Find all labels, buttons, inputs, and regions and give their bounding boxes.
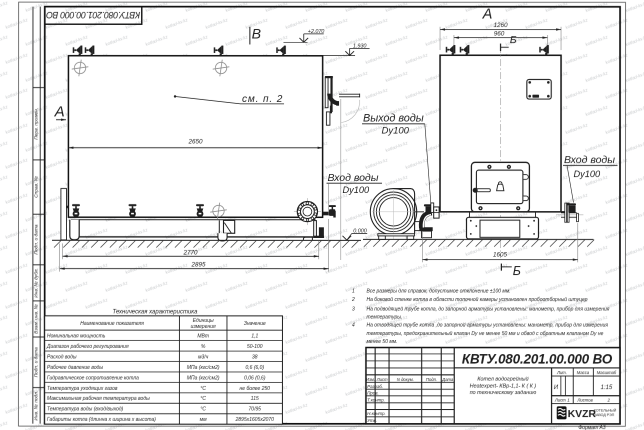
svg-text:kotlad-kv.kz: kotlad-kv.kz: [0, 420, 9, 430]
svg-text:Инв. № подл.: Инв. № подл.: [34, 391, 40, 421]
svg-text:kotlad-kv.kz: kotlad-kv.kz: [185, 280, 209, 293]
svg-text:kotlad-kv.kz: kotlad-kv.kz: [225, 244, 249, 257]
svg-text:kotlad-kv.kz: kotlad-kv.kz: [205, 297, 229, 310]
svg-text:kotlad-kv.kz: kotlad-kv.kz: [385, 140, 409, 153]
svg-text:не более 250: не более 250: [239, 386, 270, 392]
svg-text:kotlad-kv.kz: kotlad-kv.kz: [385, 70, 409, 83]
svg-text:КВТУ.080.201.00.000 ВО: КВТУ.080.201.00.000 ВО: [462, 352, 613, 367]
svg-text:kotlad-kv.kz: kotlad-kv.kz: [385, 244, 409, 257]
svg-text:Взам. инв. №: Взам. инв. №: [34, 304, 40, 334]
svg-text:2: 2: [351, 297, 355, 303]
svg-text:kotlad-kv.kz: kotlad-kv.kz: [625, 34, 644, 47]
svg-text:Выход воды: Выход воды: [363, 112, 424, 124]
svg-text:Вход воды: Вход воды: [564, 154, 615, 166]
svg-text:°С: °С: [200, 396, 206, 402]
svg-text:kotlad-kv.kz: kotlad-kv.kz: [0, 314, 9, 327]
svg-text:kotlad-kv.kz: kotlad-kv.kz: [225, 280, 249, 293]
svg-text:kotlad-kv.kz: kotlad-kv.kz: [445, 227, 469, 240]
svg-text:kotlad-kv.kz: kotlad-kv.kz: [345, 210, 369, 223]
svg-text:kotlad-kv.kz: kotlad-kv.kz: [625, 420, 644, 430]
svg-text:kotlad-kv.kz: kotlad-kv.kz: [205, 17, 229, 30]
svg-text:Лит.: Лит.: [556, 370, 567, 375]
svg-text:Гидравлическое сопротивление к: Гидравлическое сопротивление котла: [47, 375, 139, 381]
svg-text:kotlad-kv.kz: kotlad-kv.kz: [505, 34, 529, 47]
svg-text:kotlad-kv.kz: kotlad-kv.kz: [0, 384, 9, 397]
svg-text:kotlad-kv.kz: kotlad-kv.kz: [185, 34, 209, 47]
svg-text:kotlad-kv.kz: kotlad-kv.kz: [585, 104, 609, 117]
svg-text:см. п. 2: см. п. 2: [242, 94, 283, 105]
svg-text:kotlad-kv.kz: kotlad-kv.kz: [385, 34, 409, 47]
svg-text:Dy100: Dy100: [574, 169, 601, 179]
svg-text:kotlad-kv.kz: kotlad-kv.kz: [325, 297, 349, 310]
svg-text:kotlad-kv.kz: kotlad-kv.kz: [445, 17, 469, 30]
svg-text:мм: мм: [200, 417, 207, 423]
svg-text:Dy100: Dy100: [343, 185, 370, 195]
svg-text:kotlad-kv.kz: kotlad-kv.kz: [0, 104, 9, 117]
svg-text:kotlad-kv.kz: kotlad-kv.kz: [5, 17, 29, 30]
svg-text:kotlad-kv.kz: kotlad-kv.kz: [625, 210, 644, 223]
svg-text:kotlad-kv.kz: kotlad-kv.kz: [5, 367, 29, 380]
svg-text:Dy100: Dy100: [382, 126, 410, 137]
svg-text:ЗАВОД РЭП: ЗАВОД РЭП: [594, 413, 615, 417]
svg-text:Вход воды: Вход воды: [328, 172, 379, 184]
svg-text:0,06 (0,6): 0,06 (0,6): [244, 375, 266, 381]
svg-text:Масса: Масса: [577, 370, 590, 375]
svg-text:kotlad-kv.kz: kotlad-kv.kz: [325, 332, 349, 345]
svg-text:kotlad-kv.kz: kotlad-kv.kz: [5, 87, 29, 100]
svg-text:kotlad-kv.kz: kotlad-kv.kz: [0, 350, 9, 363]
svg-text:kotlad-kv.kz: kotlad-kv.kz: [565, 122, 589, 135]
svg-text:kotlad-kv.kz: kotlad-kv.kz: [625, 384, 644, 397]
svg-text:kotlad-kv.kz: kotlad-kv.kz: [325, 17, 349, 30]
svg-text:1: 1: [567, 398, 569, 403]
svg-text:Температура уходящих газов: Температура уходящих газов: [47, 386, 118, 392]
svg-text:kotlad-kv.kz: kotlad-kv.kz: [625, 70, 644, 83]
svg-text:kotlad-kv.kz: kotlad-kv.kz: [625, 174, 644, 187]
svg-text:kotlad-kv.kz: kotlad-kv.kz: [625, 244, 644, 257]
svg-text:температуры.: температуры.: [366, 315, 402, 321]
svg-text:kotlad-kv.kz: kotlad-kv.kz: [125, 297, 149, 310]
svg-text:измерения: измерения: [191, 324, 216, 330]
svg-text:kotlad-kv.kz: kotlad-kv.kz: [585, 280, 609, 293]
svg-text:МПа (кгс/см2): МПа (кгс/см2): [187, 365, 220, 371]
svg-text:38: 38: [252, 354, 258, 360]
svg-text:Максимальная рабочая температу: Максимальная рабочая температура воды: [47, 396, 150, 402]
svg-text:kotlad-kv.kz: kotlad-kv.kz: [0, 280, 9, 293]
svg-text:Лист: Лист: [376, 377, 388, 382]
svg-text:Рабочее давление воды: Рабочее давление воды: [47, 365, 103, 371]
svg-text:50-100: 50-100: [247, 344, 263, 350]
svg-text:kotlad-kv.kz: kotlad-kv.kz: [0, 244, 9, 257]
svg-text:МВт: МВт: [197, 333, 209, 339]
svg-text:kotlad-kv.kz: kotlad-kv.kz: [45, 297, 69, 310]
svg-text:kotlad-kv.kz: kotlad-kv.kz: [245, 227, 269, 240]
svg-text:Техническая характеристика: Техническая характеристика: [112, 310, 198, 316]
svg-text:kotlad-kv.kz: kotlad-kv.kz: [325, 52, 349, 65]
svg-text:0,6 (6,0): 0,6 (6,0): [245, 365, 264, 371]
svg-text:kotlad-kv.kz: kotlad-kv.kz: [545, 280, 569, 293]
svg-text:kotlad-kv.kz: kotlad-kv.kz: [265, 280, 289, 293]
svg-text:менее 50 мм.: менее 50 мм.: [366, 339, 397, 345]
svg-text:kotlad-kv.kz: kotlad-kv.kz: [285, 402, 309, 415]
svg-text:Утв.: Утв.: [367, 418, 377, 423]
svg-text:kotlad-kv.kz: kotlad-kv.kz: [65, 280, 89, 293]
svg-text:kotlad-kv.kz: kotlad-kv.kz: [345, 314, 369, 327]
svg-text:МПа (кгс/см2): МПа (кгс/см2): [187, 375, 220, 381]
svg-text:kotlad-kv.kz: kotlad-kv.kz: [585, 140, 609, 153]
svg-text:Диапазон рабочего регулировани: Диапазон рабочего регулирования: [46, 344, 129, 350]
svg-text:2895х1605х2070: 2895х1605х2070: [235, 417, 275, 423]
svg-text:Формат А3: Формат А3: [578, 425, 606, 430]
svg-text:Температура воды (вход/выход): Температура воды (вход/выход): [47, 407, 124, 413]
svg-text:Б: Б: [510, 34, 517, 46]
svg-text:Лист: Лист: [554, 398, 566, 403]
svg-text:КВТУ.080.201.00.000 ВО: КВТУ.080.201.00.000 ВО: [46, 10, 140, 20]
svg-text:kotlad-kv.kz: kotlad-kv.kz: [65, 34, 89, 47]
svg-text:4: 4: [352, 323, 355, 329]
svg-text:N докум.: N докум.: [397, 377, 414, 382]
svg-text:Н.контр.: Н.контр.: [367, 411, 386, 416]
svg-text:kotlad-kv.kz: kotlad-kv.kz: [165, 17, 189, 30]
svg-text:°С: °С: [200, 407, 206, 413]
svg-text:kotlad-kv.kz: kotlad-kv.kz: [225, 34, 249, 47]
svg-text:960: 960: [494, 31, 505, 38]
svg-text:Единицы: Единицы: [193, 318, 214, 324]
svg-text:1:15: 1:15: [601, 385, 613, 391]
svg-text:kotlad-kv.kz: kotlad-kv.kz: [325, 367, 349, 380]
svg-text:Значение: Значение: [244, 321, 266, 327]
svg-text:1605: 1605: [493, 252, 508, 259]
svg-text:kotlad-kv.kz: kotlad-kv.kz: [385, 174, 409, 187]
svg-text:Все размеры для справок, допус: Все размеры для справок, допустимое откл…: [366, 288, 510, 294]
svg-text:kotlad-kv.kz: kotlad-kv.kz: [65, 244, 89, 257]
svg-text:kotlad-kv.kz: kotlad-kv.kz: [405, 262, 429, 275]
svg-text:kotlad-kv.kz: kotlad-kv.kz: [405, 157, 429, 170]
svg-text:по техническому заданию: по техническому заданию: [470, 390, 537, 396]
svg-text:kotlad-kv.kz: kotlad-kv.kz: [565, 52, 589, 65]
svg-text:kotlad-kv.kz: kotlad-kv.kz: [265, 244, 289, 257]
svg-text:kotlad-kv.kz: kotlad-kv.kz: [285, 332, 309, 345]
svg-text:На отводящей трубе котла ,до з: На отводящей трубе котла ,до запорной ар…: [366, 322, 608, 329]
svg-text:kotlad-kv.kz: kotlad-kv.kz: [305, 420, 329, 430]
svg-text:°С: °С: [200, 386, 206, 392]
svg-text:м3/ч: м3/ч: [198, 354, 209, 360]
svg-text:kotlad-kv.kz: kotlad-kv.kz: [5, 157, 29, 170]
svg-text:kotlad-kv.kz: kotlad-kv.kz: [365, 87, 389, 100]
svg-text:70/95: 70/95: [248, 407, 261, 413]
svg-text:kotlad-kv.kz: kotlad-kv.kz: [165, 297, 189, 310]
svg-text:kotlad-kv.kz: kotlad-kv.kz: [45, 157, 69, 170]
svg-text:2770: 2770: [182, 249, 198, 256]
svg-text:Разраб.: Разраб.: [367, 384, 383, 389]
svg-text:kotlad-kv.kz: kotlad-kv.kz: [325, 227, 349, 240]
svg-text:kotlad-kv.kz: kotlad-kv.kz: [285, 17, 309, 30]
svg-text:Подп. и дата: Подп. и дата: [34, 347, 40, 377]
svg-text:И: И: [554, 385, 559, 391]
svg-text:kotlad-kv.kz: kotlad-kv.kz: [305, 384, 329, 397]
svg-text:2650: 2650: [188, 138, 204, 145]
svg-text:Подп.: Подп.: [426, 377, 437, 382]
svg-text:kotlad-kv.kz: kotlad-kv.kz: [345, 244, 369, 257]
svg-text:kotlad-kv.kz: kotlad-kv.kz: [485, 262, 509, 275]
svg-text:0.000: 0.000: [353, 229, 367, 235]
svg-text:Подп. и дата: Подп. и дата: [34, 224, 40, 254]
svg-text:kotlad-kv.kz: kotlad-kv.kz: [405, 52, 429, 65]
svg-text:kotlad-kv.kz: kotlad-kv.kz: [405, 87, 429, 100]
svg-text:kotlad-kv.kz: kotlad-kv.kz: [305, 314, 329, 327]
svg-text:kotlad-kv.kz: kotlad-kv.kz: [105, 244, 129, 257]
svg-text:kotlad-kv.kz: kotlad-kv.kz: [565, 227, 589, 240]
svg-text:Перв. примен.: Перв. примен.: [34, 108, 40, 140]
svg-text:kotlad-kv.kz: kotlad-kv.kz: [585, 210, 609, 223]
svg-text:kotlad-kv.kz: kotlad-kv.kz: [145, 280, 169, 293]
svg-text:kotlad-kv.kz: kotlad-kv.kz: [325, 402, 349, 415]
svg-text:1: 1: [352, 288, 355, 294]
svg-text:kotlad-kv.kz: kotlad-kv.kz: [0, 34, 9, 47]
svg-text:kotlad-kv.kz: kotlad-kv.kz: [305, 34, 329, 47]
svg-text:Heatexpert- КВр-1,1- К ( К ): Heatexpert- КВр-1,1- К ( К ): [470, 383, 537, 389]
svg-text:kotlad-kv.kz: kotlad-kv.kz: [625, 280, 644, 293]
svg-text:kotlad-kv.kz: kotlad-kv.kz: [45, 52, 69, 65]
svg-text:kotlad-kv.kz: kotlad-kv.kz: [305, 350, 329, 363]
svg-text:kotlad-kv.kz: kotlad-kv.kz: [5, 332, 29, 345]
svg-text:kotlad-kv.kz: kotlad-kv.kz: [565, 262, 589, 275]
svg-text:kotlad-kv.kz: kotlad-kv.kz: [0, 70, 9, 83]
svg-text:kotlad-kv.kz: kotlad-kv.kz: [145, 34, 169, 47]
svg-text:kotlad-kv.kz: kotlad-kv.kz: [625, 314, 644, 327]
svg-text:Б: Б: [513, 264, 521, 278]
svg-text:kotlad-kv.kz: kotlad-kv.kz: [365, 157, 389, 170]
svg-text:kotlad-kv.kz: kotlad-kv.kz: [245, 297, 269, 310]
svg-text:Номинальная мощность: Номинальная мощность: [47, 333, 106, 339]
svg-text:kotlad-kv.kz: kotlad-kv.kz: [0, 174, 9, 187]
svg-text:kotlad-kv.kz: kotlad-kv.kz: [585, 34, 609, 47]
svg-text:kotlad-kv.kz: kotlad-kv.kz: [625, 350, 644, 363]
svg-text:Масштаб: Масштаб: [597, 370, 617, 375]
svg-text:115: 115: [251, 396, 259, 402]
svg-text:kotlad-kv.kz: kotlad-kv.kz: [85, 227, 109, 240]
svg-text:А: А: [482, 7, 493, 23]
svg-text:kotlad-kv.kz: kotlad-kv.kz: [625, 140, 644, 153]
svg-text:Габариты котла (длинна х ширин: Габариты котла (длинна х ширина х высота…: [47, 417, 156, 423]
svg-text:kotlad-kv.kz: kotlad-kv.kz: [0, 140, 9, 153]
svg-text:kotlad-kv.kz: kotlad-kv.kz: [425, 244, 449, 257]
svg-text:kotlad-kv.kz: kotlad-kv.kz: [5, 192, 29, 205]
svg-text:kotlad-kv.kz: kotlad-kv.kz: [105, 34, 129, 47]
svg-text:kotlad-kv.kz: kotlad-kv.kz: [165, 227, 189, 240]
svg-text:Изм.: Изм.: [366, 377, 375, 382]
svg-text:kotlad-kv.kz: kotlad-kv.kz: [325, 157, 349, 170]
svg-text:kotlad-kv.kz: kotlad-kv.kz: [285, 367, 309, 380]
svg-text:kotlad-kv.kz: kotlad-kv.kz: [125, 227, 149, 240]
svg-text:2895: 2895: [190, 262, 206, 269]
svg-text:На боковой стенке котла в обла: На боковой стенке котла в области топочн…: [366, 296, 587, 303]
svg-text:температуры, предохранительный: температуры, предохранительный клапан Dу…: [366, 330, 603, 337]
svg-text:Т.контр.: Т.контр.: [367, 397, 385, 402]
svg-text:kotlad-kv.kz: kotlad-kv.kz: [525, 262, 549, 275]
svg-text:kotlad-kv.kz: kotlad-kv.kz: [5, 227, 29, 240]
svg-text:kotlad-kv.kz: kotlad-kv.kz: [5, 52, 29, 65]
svg-text:kotlad-kv.kz: kotlad-kv.kz: [0, 210, 9, 223]
svg-text:3: 3: [352, 306, 355, 312]
svg-text:kotlad-kv.kz: kotlad-kv.kz: [445, 262, 469, 275]
svg-text:Котел водогрейный: Котел водогрейный: [477, 376, 528, 383]
svg-text:KVZR: KVZR: [568, 409, 597, 420]
svg-text:1,1: 1,1: [251, 333, 258, 339]
svg-text:Расход воды: Расход воды: [47, 354, 77, 360]
svg-text:kotlad-kv.kz: kotlad-kv.kz: [625, 0, 644, 13]
svg-text:kotlad-kv.kz: kotlad-kv.kz: [345, 280, 369, 293]
svg-text:1260: 1260: [494, 22, 509, 29]
svg-text:kotlad-kv.kz: kotlad-kv.kz: [345, 140, 369, 153]
svg-text:kotlad-kv.kz: kotlad-kv.kz: [305, 280, 329, 293]
svg-text:1.930: 1.930: [353, 44, 367, 50]
svg-text:Справ. №: Справ. №: [34, 176, 40, 198]
svg-text:kotlad-kv.kz: kotlad-kv.kz: [5, 122, 29, 135]
svg-text:В: В: [252, 25, 261, 41]
svg-text:kotlad-kv.kz: kotlad-kv.kz: [45, 87, 69, 100]
svg-text:kotlad-kv.kz: kotlad-kv.kz: [365, 52, 389, 65]
svg-text:kotlad-kv.kz: kotlad-kv.kz: [365, 262, 389, 275]
svg-text:kotlad-kv.kz: kotlad-kv.kz: [565, 17, 589, 30]
svg-text:kotlad-kv.kz: kotlad-kv.kz: [45, 122, 69, 135]
svg-text:kotlad-kv.kz: kotlad-kv.kz: [5, 402, 29, 415]
svg-text:kotlad-kv.kz: kotlad-kv.kz: [5, 297, 29, 310]
svg-text:kotlad-kv.kz: kotlad-kv.kz: [105, 280, 129, 293]
svg-text:Дата: Дата: [441, 377, 454, 382]
svg-text:Пров.: Пров.: [367, 391, 379, 396]
svg-text:КОТЕЛЬНЫЙ: КОТЕЛЬНЫЙ: [594, 409, 617, 413]
svg-text:kotlad-kv.kz: kotlad-kv.kz: [465, 34, 489, 47]
svg-text:kotlad-kv.kz: kotlad-kv.kz: [265, 34, 289, 47]
svg-text:+2.070: +2.070: [308, 29, 325, 35]
svg-text:kotlad-kv.kz: kotlad-kv.kz: [345, 70, 369, 83]
svg-text:kotlad-kv.kz: kotlad-kv.kz: [85, 297, 109, 310]
svg-text:kotlad-kv.kz: kotlad-kv.kz: [0, 0, 9, 13]
svg-text:На подводящей трубе котла, д: На подводящей трубе котла, до запорной а…: [366, 305, 609, 312]
svg-text:kotlad-kv.kz: kotlad-kv.kz: [365, 17, 389, 30]
svg-text:kotlad-kv.kz: kotlad-kv.kz: [545, 244, 569, 257]
svg-text:Листов: Листов: [576, 398, 593, 403]
svg-text:kotlad-kv.kz: kotlad-kv.kz: [425, 34, 449, 47]
svg-text:kotlad-kv.kz: kotlad-kv.kz: [585, 70, 609, 83]
svg-text:kotlad-kv.kz: kotlad-kv.kz: [405, 17, 429, 30]
svg-text:kotlad-kv.kz: kotlad-kv.kz: [545, 34, 569, 47]
svg-text:kotlad-kv.kz: kotlad-kv.kz: [625, 104, 644, 117]
svg-text:kotlad-kv.kz: kotlad-kv.kz: [505, 244, 529, 257]
svg-text:kotlad-kv.kz: kotlad-kv.kz: [525, 17, 549, 30]
svg-text:kotlad-kv.kz: kotlad-kv.kz: [285, 297, 309, 310]
svg-text:kotlad-kv.kz: kotlad-kv.kz: [565, 87, 589, 100]
svg-text:kotlad-kv.kz: kotlad-kv.kz: [5, 262, 29, 275]
svg-text:Инв. № дубл.: Инв. № дубл.: [34, 268, 40, 298]
svg-text:А: А: [54, 103, 65, 120]
svg-text:Наименование показателя: Наименование показателя: [80, 321, 144, 327]
svg-text:%: %: [201, 344, 206, 350]
